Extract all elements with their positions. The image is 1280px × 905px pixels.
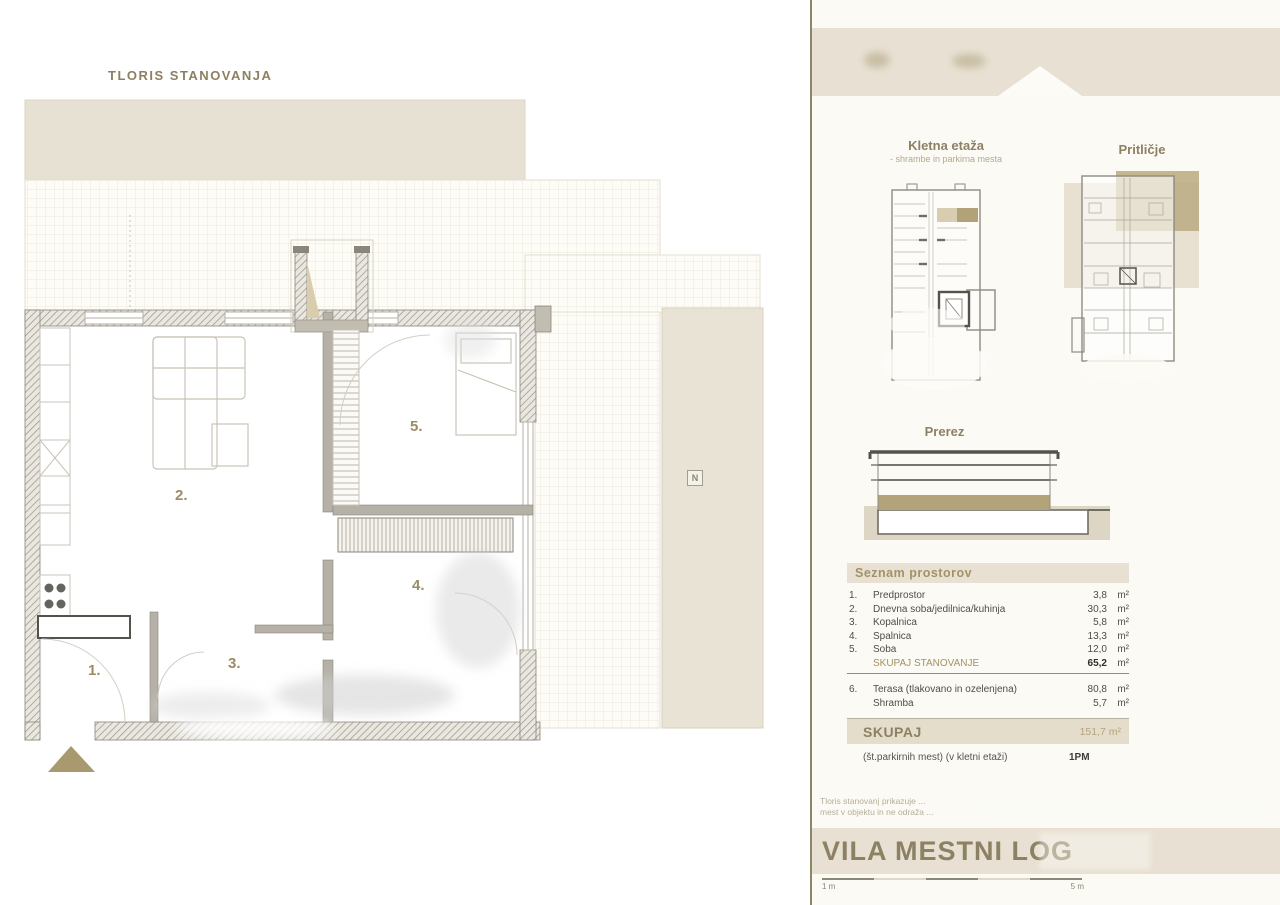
wardrobe-room4 xyxy=(338,518,513,552)
row-name: Spalnica xyxy=(873,631,1065,642)
highlight-parking xyxy=(957,208,978,222)
floor-plan-drawing xyxy=(0,0,810,905)
ground-floor-plan-title: Pritličje xyxy=(1070,142,1214,157)
section-title: Prerez xyxy=(852,424,1037,439)
row-num: 6. xyxy=(847,684,873,695)
row-num: 3. xyxy=(847,617,873,628)
disclaimer-redaction xyxy=(982,797,1272,819)
row-name: Shramba xyxy=(873,698,1065,709)
row-area: 13,3 xyxy=(1065,631,1107,642)
section-drawing xyxy=(862,440,1112,545)
subtotal-unit: m² xyxy=(1107,658,1129,669)
wardrobe-room5 xyxy=(333,330,359,505)
room-label-3: 3. xyxy=(228,655,241,672)
table-divider xyxy=(847,673,1129,674)
north-indicator-icon: N xyxy=(687,470,703,486)
row-area: 3,8 xyxy=(1065,590,1107,601)
room-label-5: 5. xyxy=(410,418,423,435)
subtotal-label: SKUPAJ STANOVANJE xyxy=(873,658,1065,669)
row-area: 30,3 xyxy=(1065,604,1107,615)
row-area: 12,0 xyxy=(1065,644,1107,655)
row-num: 5. xyxy=(847,644,873,655)
basement-plan-subtitle: - shrambe in parkirna mesta xyxy=(852,154,1040,164)
row-num: 2. xyxy=(847,604,873,615)
row-name: Kopalnica xyxy=(873,617,1065,628)
highlight-floor xyxy=(878,495,1050,510)
row-unit: m² xyxy=(1107,684,1129,695)
neighbor-strip xyxy=(662,308,763,728)
table-row: 4. Spalnica 13,3 m² xyxy=(847,630,1129,644)
table-row: 5. Soba 12,0 m² xyxy=(847,643,1129,657)
row-unit: m² xyxy=(1107,604,1129,615)
row-unit: m² xyxy=(1107,698,1129,709)
logo-smudge-icon xyxy=(952,54,986,68)
ground-floor-mini-plan xyxy=(1064,168,1214,388)
row-unit: m² xyxy=(1107,631,1129,642)
logo-smudge-icon xyxy=(864,52,890,68)
basement-plan-title: Kletna etaža xyxy=(852,138,1040,153)
row-name: Predprostor xyxy=(873,590,1065,601)
row-unit: m² xyxy=(1107,590,1129,601)
total-label: SKUPAJ xyxy=(863,724,922,740)
band-notch xyxy=(998,66,1082,96)
row-name: Terasa (tlakovano in ozelenjena) xyxy=(873,684,1065,695)
scale-bar: 1 m 5 m xyxy=(822,878,1084,891)
row-area: 80,8 xyxy=(1065,684,1107,695)
subtotal-row: SKUPAJ STANOVANJE 65,2 m² xyxy=(847,657,1129,671)
scale-label-right: 5 m xyxy=(1071,882,1084,891)
highlight-storage xyxy=(937,208,957,222)
row-area: 5,8 xyxy=(1065,617,1107,628)
room-label-1: 1. xyxy=(88,662,101,679)
terrace-canopy xyxy=(25,100,525,180)
table-row: 6. Terasa (tlakovano in ozelenjena) 80,8… xyxy=(847,683,1129,697)
row-name: Soba xyxy=(873,644,1065,655)
entrance-arrow xyxy=(48,746,95,772)
subtotal-area: 65,2 xyxy=(1065,658,1107,669)
page: TLORIS STANOVANJA xyxy=(0,0,1280,905)
total-value: 151,7 m² xyxy=(1080,726,1121,738)
row-unit: m² xyxy=(1107,644,1129,655)
table-row: 2. Dnevna soba/jedilnica/kuhinja 30,3 m² xyxy=(847,603,1129,617)
basement-mini-plan xyxy=(867,172,1027,402)
table-row: Shramba 5,7 m² xyxy=(847,697,1129,711)
row-num: 4. xyxy=(847,631,873,642)
parking-value: 1PM xyxy=(1069,752,1129,763)
title-redaction xyxy=(1040,833,1150,869)
row-unit: m² xyxy=(1107,617,1129,628)
room-list-header: Seznam prostorov xyxy=(847,563,1129,583)
scale-segments xyxy=(822,878,1084,880)
total-band: SKUPAJ 151,7 m² xyxy=(847,718,1129,744)
parking-label: (št.parkirnih mest) (v kletni etaži) xyxy=(863,752,1069,763)
table-row: 3. Kopalnica 5,8 m² xyxy=(847,616,1129,630)
table-row: 1. Predprostor 3,8 m² xyxy=(847,589,1129,603)
row-area: 5,7 xyxy=(1065,698,1107,709)
sidebar: Kletna etaža - shrambe in parkirna mesta… xyxy=(810,0,1280,905)
row-name: Dnevna soba/jedilnica/kuhinja xyxy=(873,604,1065,615)
room-label-4: 4. xyxy=(412,577,425,594)
scale-label-left: 1 m xyxy=(822,882,835,891)
room-label-2: 2. xyxy=(175,487,188,504)
room-table: 1. Predprostor 3,8 m² 2. Dnevna soba/jed… xyxy=(847,589,1129,710)
parking-row: (št.parkirnih mest) (v kletni etaži) 1PM xyxy=(847,752,1129,763)
row-num: 1. xyxy=(847,590,873,601)
kitchen-counter xyxy=(38,616,130,638)
